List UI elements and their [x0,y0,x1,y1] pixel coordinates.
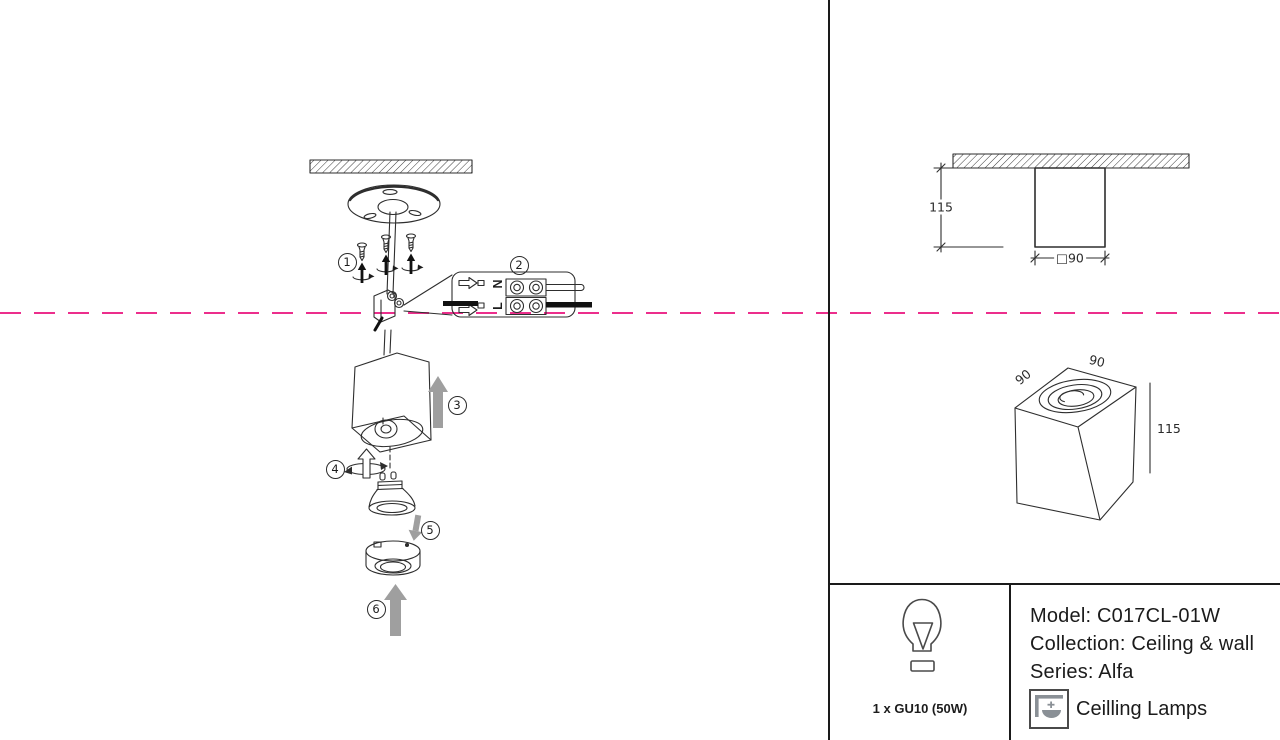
iso-view-drawing [1015,368,1150,520]
bulb-spec-label: 1 x GU10 (50W) [873,701,968,716]
side-view-drawing [934,154,1189,265]
step-4-badge: 4 [326,460,345,479]
hanging-wire [384,212,396,355]
step-2-badge: 2 [510,256,529,275]
canopy-plate [348,185,440,223]
step-6-badge: 6 [367,600,386,619]
live-wire-in [443,301,478,306]
bulb-icon [903,600,941,672]
model-line: Model: C017CL-01W [1030,605,1220,628]
collection-line: Collection: Ceiling & wall [1030,633,1254,656]
ceiling-hatch-right [953,154,1189,168]
ceiling-hatch-left [310,160,472,173]
instruction-sheet: 1 2 3 4 5 6 N L 115 □90 90 90 115 1 x GU… [0,0,1280,740]
diagram-line-art [0,0,1280,740]
live-wire-out [546,302,592,308]
lamp-body-cube [352,353,431,452]
terminal-n-label: N [491,277,505,291]
frame-dividers [829,0,1280,740]
side-width-dimension: □90 [1054,251,1086,266]
category-label: Ceilling Lamps [1076,698,1207,721]
step-1-badge: 1 [338,253,357,272]
wire-bracket [374,290,404,330]
leader-lines [404,275,452,315]
series-line: Series: Alfa [1030,661,1134,684]
side-height-dimension: 115 [927,200,955,215]
iso-height-dimension: 115 [1155,421,1183,436]
step-5-badge: 5 [421,521,440,540]
terminal-l-label: L [491,299,505,313]
trim-ring [366,541,420,575]
arrow-up-6-icon [384,584,407,636]
ceiling-lamp-icon [1030,690,1068,728]
step-3-badge: 3 [448,396,467,415]
gu10-bulb [369,472,415,515]
terminal-block [443,272,592,317]
